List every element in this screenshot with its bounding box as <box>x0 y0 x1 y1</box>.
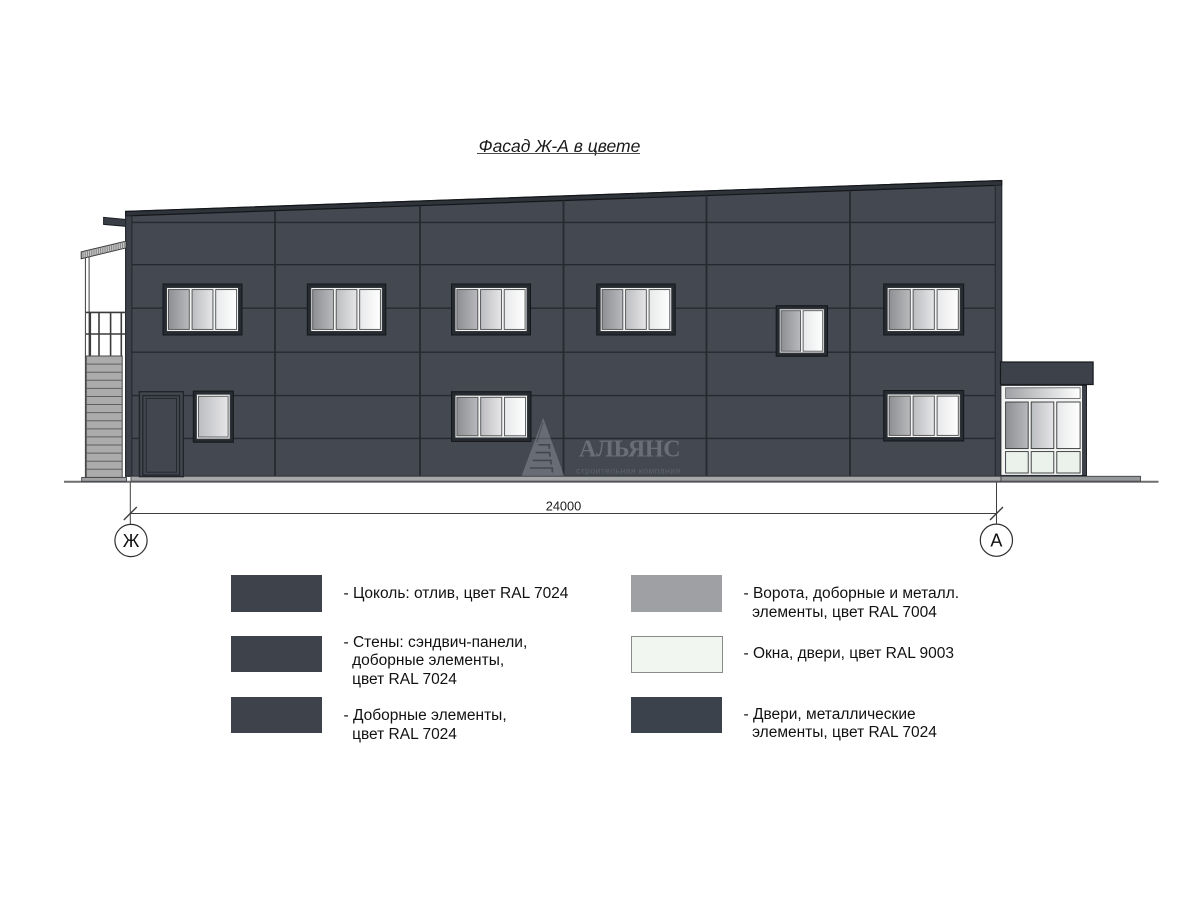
svg-text:Ж: Ж <box>123 531 140 551</box>
svg-text:24000: 24000 <box>546 498 582 513</box>
svg-text:строительная компания: строительная компания <box>576 466 681 476</box>
svg-text:АЛЬЯНС: АЛЬЯНС <box>579 437 680 463</box>
svg-text:А: А <box>990 531 1002 551</box>
